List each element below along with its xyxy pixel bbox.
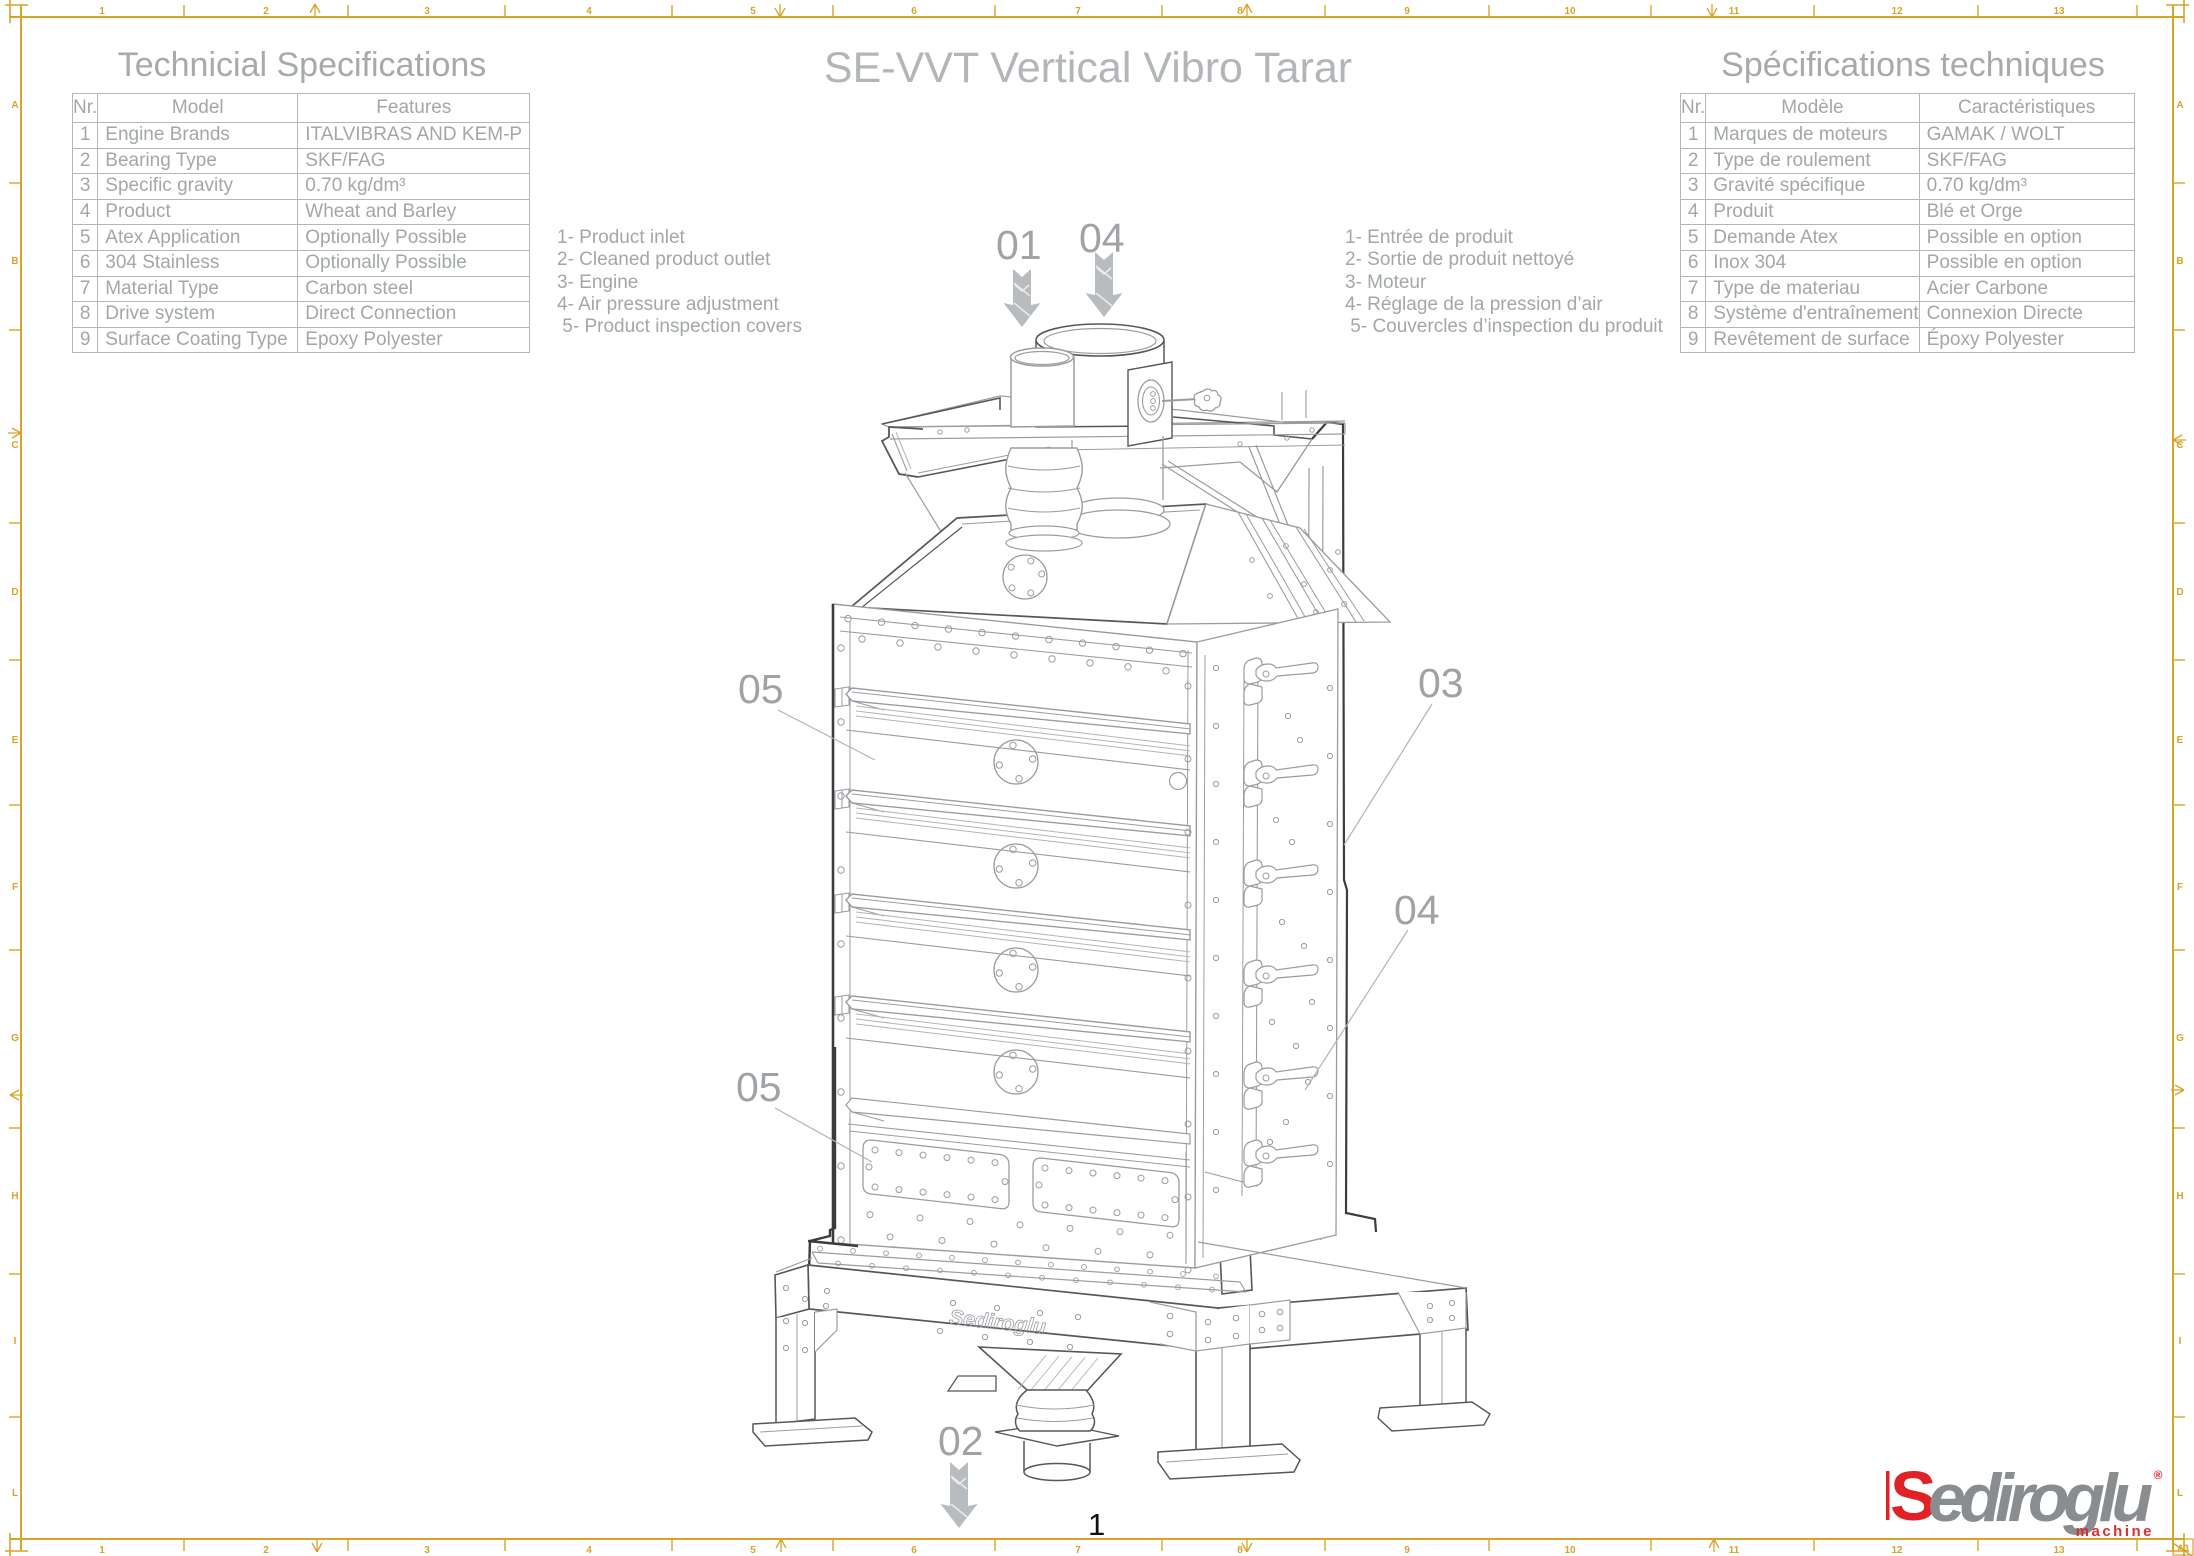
svg-text:L: L (12, 1488, 18, 1499)
svg-text:11: 11 (1729, 1545, 1740, 1556)
svg-text:9: 9 (1404, 6, 1410, 17)
svg-text:9: 9 (1404, 1545, 1410, 1556)
svg-text:2: 2 (263, 6, 269, 17)
svg-text:B: B (2176, 256, 2183, 267)
svg-text:A3: A3 (2177, 1543, 2189, 1553)
svg-text:machine: machine (2076, 1523, 2154, 1540)
svg-text:13: 13 (2053, 6, 2065, 17)
svg-text:12: 12 (1891, 6, 1903, 17)
svg-text:2: 2 (263, 1545, 269, 1556)
svg-text:G: G (2176, 1033, 2184, 1044)
svg-text:4: 4 (586, 6, 592, 17)
svg-text:1: 1 (99, 1545, 105, 1556)
svg-text:I: I (2179, 1336, 2182, 1347)
svg-text:12: 12 (1891, 1545, 1903, 1556)
svg-text:C: C (11, 440, 18, 451)
svg-text:I: I (14, 1336, 17, 1347)
svg-text:11: 11 (1729, 6, 1740, 17)
svg-text:4: 4 (586, 1545, 592, 1556)
svg-text:1: 1 (99, 6, 105, 17)
svg-text:3: 3 (424, 1545, 430, 1556)
svg-text:A: A (2176, 100, 2183, 111)
svg-text:8: 8 (1237, 1545, 1243, 1556)
svg-text:G: G (11, 1033, 19, 1044)
svg-text:H: H (2176, 1191, 2183, 1202)
svg-text:13: 13 (2053, 1545, 2065, 1556)
svg-text:H: H (11, 1191, 18, 1202)
svg-text:F: F (2177, 882, 2183, 893)
svg-text:10: 10 (1564, 6, 1576, 17)
svg-text:L: L (2177, 1488, 2183, 1499)
svg-text:6: 6 (911, 6, 917, 17)
svg-text:D: D (11, 587, 18, 598)
svg-text:C: C (2176, 440, 2183, 451)
svg-text:5: 5 (750, 1545, 756, 1556)
svg-text:D: D (2176, 587, 2183, 598)
svg-text:E: E (2177, 735, 2184, 746)
svg-text:5: 5 (750, 6, 756, 17)
svg-text:®: ® (2154, 1468, 2163, 1482)
svg-text:3: 3 (424, 6, 430, 17)
svg-text:10: 10 (1564, 1545, 1576, 1556)
svg-text:7: 7 (1075, 1545, 1081, 1556)
svg-text:E: E (12, 735, 19, 746)
svg-text:F: F (12, 882, 18, 893)
svg-text:7: 7 (1075, 6, 1081, 17)
svg-text:B: B (11, 256, 18, 267)
svg-text:A: A (11, 100, 18, 111)
svg-text:6: 6 (911, 1545, 917, 1556)
